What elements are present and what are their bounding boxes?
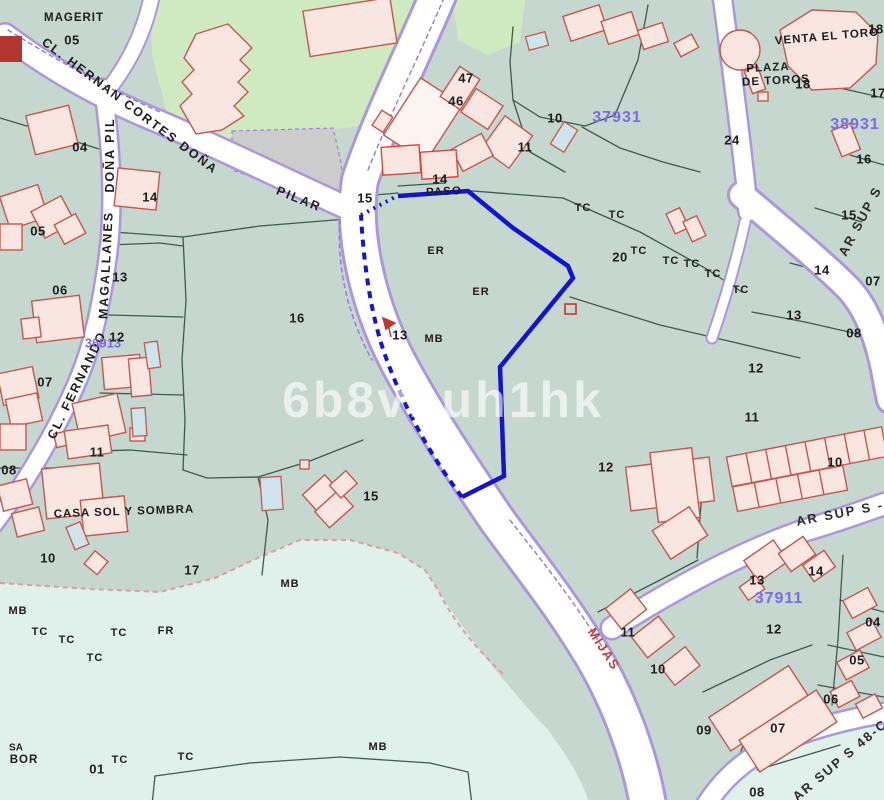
parcel-number-13-se: 13 xyxy=(749,573,764,588)
parcel-number-12-big: 12 xyxy=(598,460,613,475)
parcel-number-11-left: 11 xyxy=(90,445,105,460)
parcel-number-05-magerit: 05 xyxy=(64,33,79,48)
landuse-fr: FR xyxy=(158,625,175,637)
parcel-number-06: 06 xyxy=(52,283,67,298)
parcel-number-11-bottom: 11 xyxy=(621,625,636,640)
landuse-mb-1: MB xyxy=(424,333,443,345)
landuse-er-1: ER xyxy=(427,245,444,257)
block-code-37931: 37931 xyxy=(592,109,642,127)
landuse-tc-3: TC xyxy=(631,245,648,257)
parcel-number-07-left: 07 xyxy=(37,375,52,390)
landuse-tc-6: TC xyxy=(705,268,722,280)
parcel-number-12-left: 12 xyxy=(109,330,124,345)
place-paso: PASO xyxy=(426,185,462,199)
parcel-number-14-paso: 14 xyxy=(432,172,447,187)
cadastral-map-canvas[interactable]: MAGERIT05CL. HERNAN CORTES DOÑAPILARDOÑA… xyxy=(0,0,884,800)
landuse-mb-2: MB xyxy=(280,578,299,590)
landuse-tc-13: TC xyxy=(178,751,195,763)
parcel-number-10-terrace: 10 xyxy=(827,455,842,470)
parcel-number-16-center: 16 xyxy=(289,311,304,326)
parcel-number-13-right: 13 xyxy=(786,308,801,323)
landuse-tc-1: TC xyxy=(575,202,592,214)
parcel-number-12-se: 12 xyxy=(766,622,781,637)
parcel-number-10-left: 10 xyxy=(40,551,55,566)
parcel-number-06-se: 06 xyxy=(823,692,838,707)
parcel-number-12-right: 12 xyxy=(748,361,763,376)
parcel-number-07-right: 07 xyxy=(865,274,880,289)
place-bor-line1: SA xyxy=(9,743,23,754)
parcel-number-18-right: 18 xyxy=(795,77,810,92)
parcel-number-15-road: 15 xyxy=(357,191,372,206)
parcel-number-20: 20 xyxy=(612,250,627,265)
parcel-number-09-se: 09 xyxy=(696,723,711,738)
parcel-number-16-right: 16 xyxy=(856,152,871,167)
place-plaza-line1: PLAZA xyxy=(746,61,790,75)
parcel-number-24: 24 xyxy=(724,133,739,148)
landuse-tc-5: TC xyxy=(684,258,701,270)
parcel-number-10-top: 10 xyxy=(547,111,562,126)
parcel-number-13-mark: 13 xyxy=(392,328,407,343)
parcel-number-11-right: 11 xyxy=(745,410,760,425)
landuse-tc-8: TC xyxy=(32,626,49,638)
parcel-number-08-se: 08 xyxy=(749,785,764,800)
parcel-number-10-bottom: 10 xyxy=(650,662,665,677)
dark-red-building xyxy=(0,36,22,62)
parcel-number-17: 17 xyxy=(184,563,199,578)
parcel-number-15-center: 15 xyxy=(363,489,378,504)
landuse-tc-11: TC xyxy=(87,652,104,664)
landuse-tc-7: TC xyxy=(733,284,750,296)
landuse-tc-10: TC xyxy=(111,627,128,639)
landuse-tc-9: TC xyxy=(59,634,76,646)
parcel-number-18-corner: 18 xyxy=(868,22,883,37)
parcel-number-05-se: 05 xyxy=(849,653,864,668)
place-magerit: MAGERIT xyxy=(44,12,104,24)
parcel-number-07-se: 07 xyxy=(770,721,785,736)
landuse-er-2: ER xyxy=(472,286,489,298)
parcel-number-14-right: 14 xyxy=(814,263,829,278)
parcel-number-15-right: 15 xyxy=(841,208,856,223)
parcel-number-04-se: 04 xyxy=(865,615,880,630)
parcel-number-11-top: 11 xyxy=(518,140,533,155)
parcel-number-01: 01 xyxy=(89,762,104,777)
parcel-number-05-left: 05 xyxy=(30,224,45,239)
parcel-number-14-left: 14 xyxy=(142,190,157,205)
watermark-text: 6b8vbuh1hk xyxy=(282,371,604,429)
parcel-number-46: 46 xyxy=(448,94,463,109)
landuse-tc-4: TC xyxy=(663,255,680,267)
parcel-number-14-se: 14 xyxy=(808,564,823,579)
block-code-37911: 37911 xyxy=(755,590,804,608)
parcel-number-47: 47 xyxy=(458,71,473,86)
place-bor-line2: BOR xyxy=(10,754,39,766)
street-name-dona-pil: DOÑA PIL xyxy=(103,117,117,192)
parcel-number-13-left: 13 xyxy=(112,270,127,285)
landuse-mb-3: MB xyxy=(8,605,27,617)
block-code-38931: 38931 xyxy=(830,116,880,134)
landuse-mb-4: MB xyxy=(368,741,387,753)
landuse-tc-2: TC xyxy=(609,209,626,221)
parcel-number-17-right: 17 xyxy=(870,86,884,101)
parcel-number-04: 04 xyxy=(72,140,87,155)
landuse-tc-12: TC xyxy=(112,754,129,766)
parcel-number-08-right: 08 xyxy=(846,326,861,341)
parcel-number-08-left: 08 xyxy=(1,463,16,478)
